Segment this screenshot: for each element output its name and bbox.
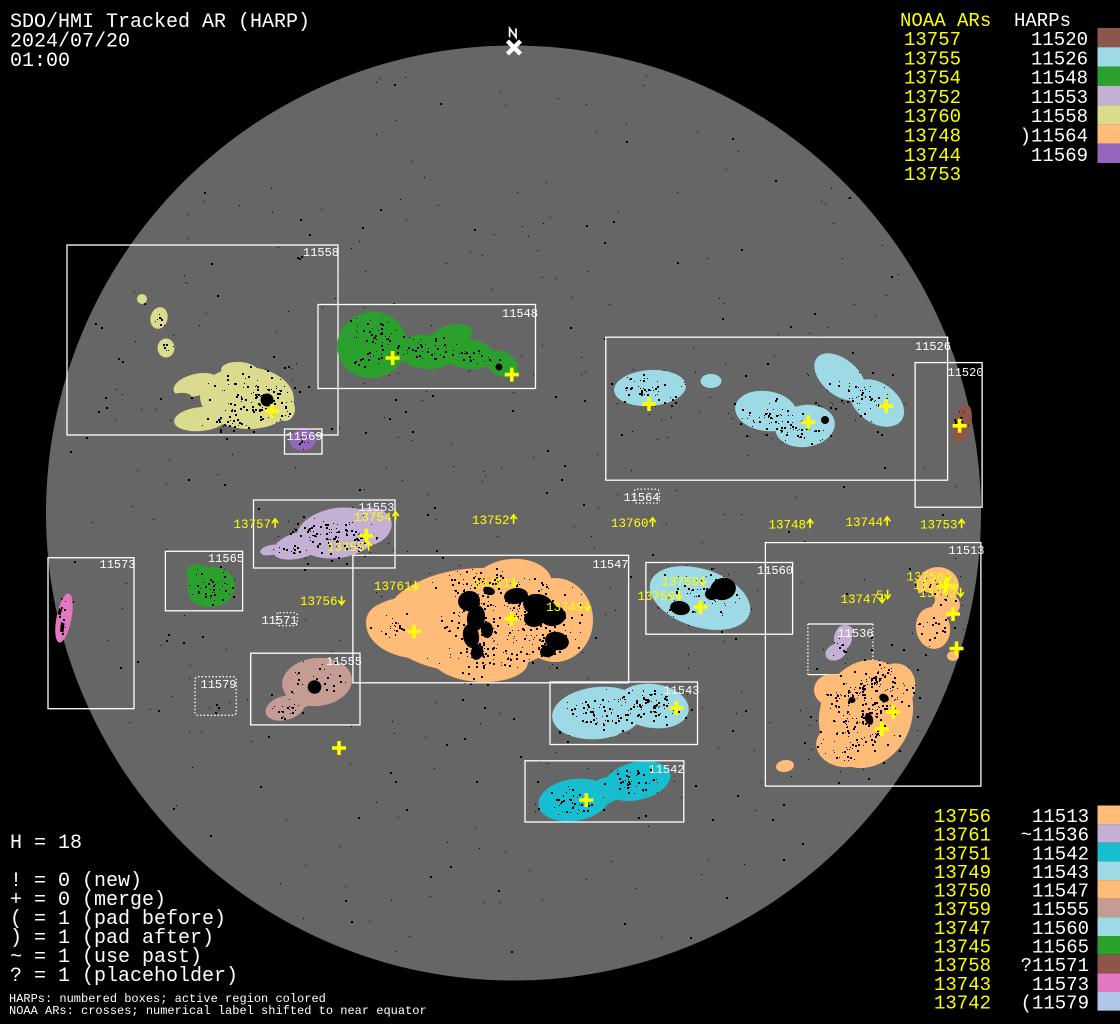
svg-text:11579: 11579 [201,678,237,692]
svg-text:H = 18: H = 18 [10,832,82,855]
svg-text:01:00: 01:00 [10,50,70,73]
svg-text:? = 1 (placeholder): ? = 1 (placeholder) [10,965,238,988]
svg-text:13756: 13756 [300,595,338,609]
svg-text:11571: 11571 [262,614,298,628]
svg-text:11548: 11548 [502,307,538,321]
svg-text:11558: 11558 [303,246,339,260]
svg-text:13754: 13754 [354,511,392,525]
svg-text:11565: 11565 [208,552,244,566]
svg-text:13749: 13749 [546,601,584,615]
svg-text:13761: 13761 [374,580,412,594]
svg-text:11560: 11560 [757,564,793,578]
svg-text:11555: 11555 [326,655,362,669]
svg-text:NOAA ARs: crosses; numerical l: NOAA ARs: crosses; numerical label shift… [9,1004,427,1018]
svg-text:13751: 13751 [473,577,511,591]
svg-text:13752: 13752 [472,514,510,528]
svg-text:11542: 11542 [649,763,685,777]
svg-text:11569: 11569 [287,430,323,444]
svg-text:13742: 13742 [919,587,957,601]
svg-text:11513: 11513 [949,544,985,558]
svg-text:13750: 13750 [638,590,676,604]
svg-text:13753: 13753 [920,519,958,533]
svg-text:(11579: (11579 [1021,993,1089,1015]
svg-text:11573: 11573 [100,558,136,572]
svg-text:13747: 13747 [841,593,879,607]
svg-text:13760: 13760 [611,517,649,531]
svg-text:13757: 13757 [234,518,272,532]
svg-text:13755: 13755 [327,541,365,555]
svg-text:13753: 13753 [904,164,961,186]
svg-text:13742: 13742 [934,993,991,1015]
svg-text:13744: 13744 [846,516,884,530]
svg-text:11520: 11520 [948,366,984,380]
svg-text:11564: 11564 [624,491,660,505]
svg-text:11526: 11526 [915,340,951,354]
svg-text:13759: 13759 [662,576,700,590]
svg-text:13748: 13748 [769,519,807,533]
svg-text:5: 5 [876,589,884,603]
svg-text:11543: 11543 [664,684,700,698]
svg-text:11569: 11569 [1031,145,1088,167]
svg-text:11536: 11536 [838,627,874,641]
svg-text:11547: 11547 [593,558,629,572]
